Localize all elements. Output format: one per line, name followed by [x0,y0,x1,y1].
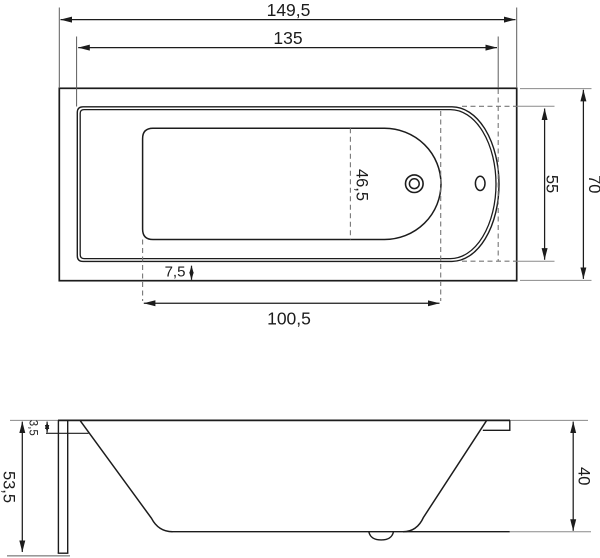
drain-outer-circle [406,175,424,193]
rim-opening-outer-edge [77,107,499,262]
dim-label-inner-depth: 40 [575,467,593,485]
side-view: 53,5 3,5 40 [0,420,593,556]
drain-bump [369,532,394,540]
dim-label-rim-width: 55 [543,175,561,193]
dim-label-rim-length: 135 [273,28,302,48]
tub-outer-outline [59,88,516,280]
basin-left-slope [80,421,172,532]
bathtub-technical-drawing: 149,5 135 100,5 55 70 46,5 7,5 53,5 [0,0,600,558]
dim-label-rim-offset: 7,5 [165,264,186,281]
dim-label-overall-width: 70 [585,175,600,193]
drawing-canvas: 149,5 135 100,5 55 70 46,5 7,5 53,5 [0,0,600,558]
basin-floor-outline [143,128,441,239]
drain-inner-circle [409,179,419,189]
dim-label-basin-length: 100,5 [267,309,311,329]
dim-label-overall-height: 53,5 [0,471,18,503]
basin-right-slope [403,421,486,532]
rim-edge-detail [483,420,510,430]
top-view: 149,5 135 100,5 55 70 46,5 7,5 [59,0,600,329]
dim-label-basin-width: 46,5 [352,169,370,201]
dim-label-rim-thickness: 3,5 [27,420,39,436]
dim-label-overall-length: 149,5 [267,0,311,20]
overflow-oval [475,176,485,190]
